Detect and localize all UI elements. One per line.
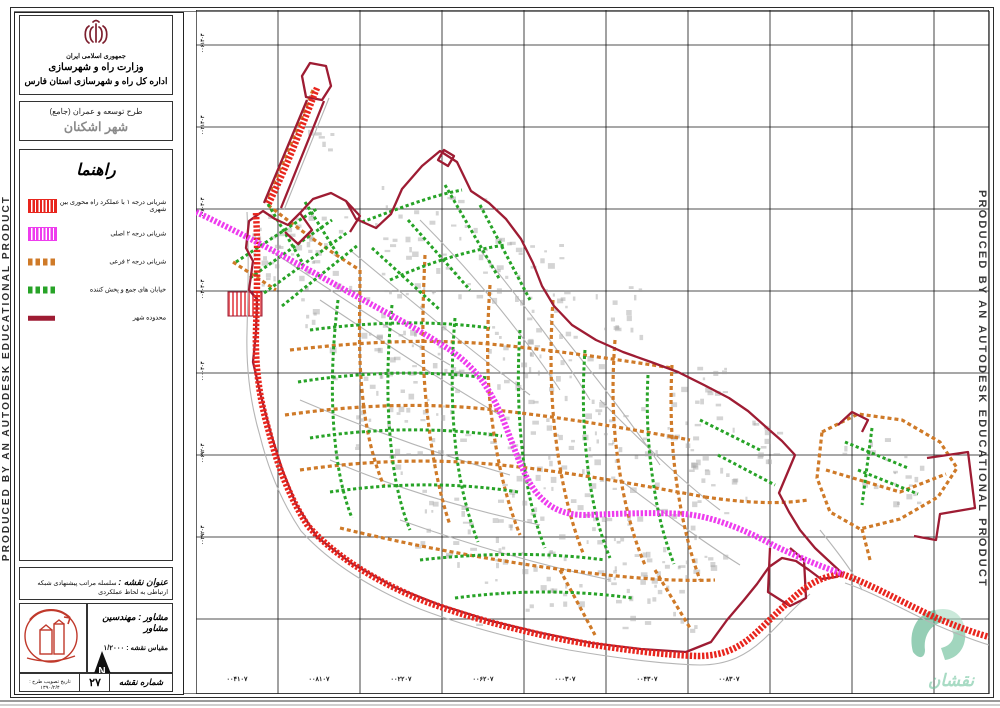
easting-label: ۰۰۴۱۰۷ <box>227 676 248 683</box>
approval-date: تاریخ تصویب طرح : ۱۳۹۰/۲/۴ <box>20 674 80 691</box>
legend-item-label: شریانی درجه ۲ اصلی <box>56 231 166 238</box>
legend-items: شریانی درجه ۱ با عملکرد راه محوری بین شه… <box>24 192 168 332</box>
northing-label: ۰۰۲۹۲۰۳ <box>200 525 206 545</box>
legend-item: شریانی درجه ۱ با عملکرد راه محوری بین شه… <box>24 192 168 220</box>
coordinate-labels: ۰۰۴۱۰۷۰۰۸۱۰۷۰۰۲۲۰۷۰۰۶۲۰۷۰۰۰۳۰۷۰۰۴۳۰۷۰۰۸۳… <box>200 33 740 683</box>
easting-label: ۰۰۴۳۰۷ <box>637 676 658 683</box>
autodesk-stamp-left: PRODUCED BY AN AUTODESK EDUCATIONAL PROD… <box>1 195 12 561</box>
plan-box: طرح توسعه و عمران (جامع) شهر اشکنان <box>19 101 173 141</box>
dashed-line-swatch <box>28 259 55 266</box>
solid-line-swatch <box>28 316 55 321</box>
sheet-bottom-edge <box>0 700 1000 702</box>
legend-item: شریانی درجه ۲ فرعی <box>24 248 168 276</box>
legend-item-label: محدوده شهر <box>56 315 166 322</box>
easting-label: ۰۰۶۲۰۷ <box>473 676 494 683</box>
northing-label: ۰۰۴۰۳۰۳ <box>200 279 206 299</box>
map-sheet: { "stamp_text": "PRODUCED BY AN AUTODESK… <box>0 0 1000 708</box>
easting-label: ۰۰۸۱۰۷ <box>309 676 330 683</box>
dashed-line-swatch <box>28 287 55 294</box>
easting-label: ۰۰۰۳۰۷ <box>555 676 576 683</box>
northing-label: ۰۰۶۹۲۰۳ <box>200 443 206 463</box>
plan-type: طرح توسعه و عمران (جامع) <box>20 107 172 116</box>
sheet-number: ۲۷ <box>80 674 110 689</box>
city-map-canvas: نقشان ۰۰۴۱۰۷۰۰۸۱۰۷۰۰۲۲۰۷۰۰۶۲۰۷۰۰۰۳۰۷۰۰۴۳… <box>196 10 989 694</box>
northing-label: ۰۰۶۱۳۰۳ <box>200 33 206 53</box>
map-title-row: عنوان نقشه : سلسله مراتب پیشنهادی شبکه ا… <box>20 568 172 596</box>
sheet-number-cell: ۲۷ <box>79 673 111 692</box>
legend-item-label: شریانی درجه ۱ با عملکرد راه محوری بین شه… <box>56 199 166 213</box>
iran-emblem-icon <box>83 19 109 45</box>
consultant-name: مشاور : مهندسین مشاور <box>88 604 172 634</box>
legend-title: راهنما <box>20 160 172 180</box>
northing-label: ۰۰۲۱۳۰۳ <box>200 115 206 135</box>
department-title: اداره کل راه و شهرسازی استان فارس <box>20 76 172 87</box>
hatched-line-swatch <box>28 227 57 241</box>
ministry-title: وزارت راه و شهرسازی <box>20 62 172 73</box>
approval-date-cell: تاریخ تصویب طرح : ۱۳۹۰/۲/۴ <box>19 673 81 692</box>
grid-lines <box>196 10 989 694</box>
legend-item-label: شریانی درجه ۲ فرعی <box>56 259 166 266</box>
legend-item: محدوده شهر <box>24 304 168 332</box>
easting-label: ۰۰۸۳۰۷ <box>719 676 740 683</box>
magenta-roads <box>196 212 843 574</box>
consultant-box: مشاور : مهندسین مشاور مقیاس نقشه : ۱/۲۰۰… <box>87 603 173 673</box>
legend-item: شریانی درجه ۲ اصلی <box>24 220 168 248</box>
northing-label: ۰۰۰۰۳۰۳ <box>200 361 206 381</box>
map-frame <box>196 10 989 694</box>
consultant-logo-icon <box>20 604 82 668</box>
map-title-label: عنوان نقشه : <box>118 577 168 587</box>
northing-label: ۰۰۸۰۳۰۳ <box>200 197 206 217</box>
legend-item-label: خیابان های جمع و پخش کننده <box>56 287 166 294</box>
sheet-number-label-cell: شماره نقشه <box>109 673 173 692</box>
country-title: جمهوری اسلامی ایران <box>20 52 172 60</box>
title-block: جمهوری اسلامی ایران وزارت راه و شهرسازی … <box>14 12 184 695</box>
legend-item: خیابان های جمع و پخش کننده <box>24 276 168 304</box>
gray-roads <box>247 95 989 665</box>
consultant-logo-box <box>19 603 87 673</box>
sheet-bottom-edge-2 <box>0 704 1000 706</box>
map-title-box: عنوان نقشه : سلسله مراتب پیشنهادی شبکه ا… <box>19 567 173 600</box>
easting-label: ۰۰۲۲۰۷ <box>391 676 412 683</box>
header-box: جمهوری اسلامی ایران وزارت راه و شهرسازی … <box>19 15 173 95</box>
watermark-word: نقشان <box>928 671 975 690</box>
legend-box: راهنما شریانی درجه ۱ با عملکرد راه محوری… <box>19 149 173 561</box>
sheet-number-label: شماره نقشه <box>110 674 172 688</box>
hatched-line-swatch <box>28 199 57 213</box>
city-name: شهر اشکنان <box>20 119 172 134</box>
